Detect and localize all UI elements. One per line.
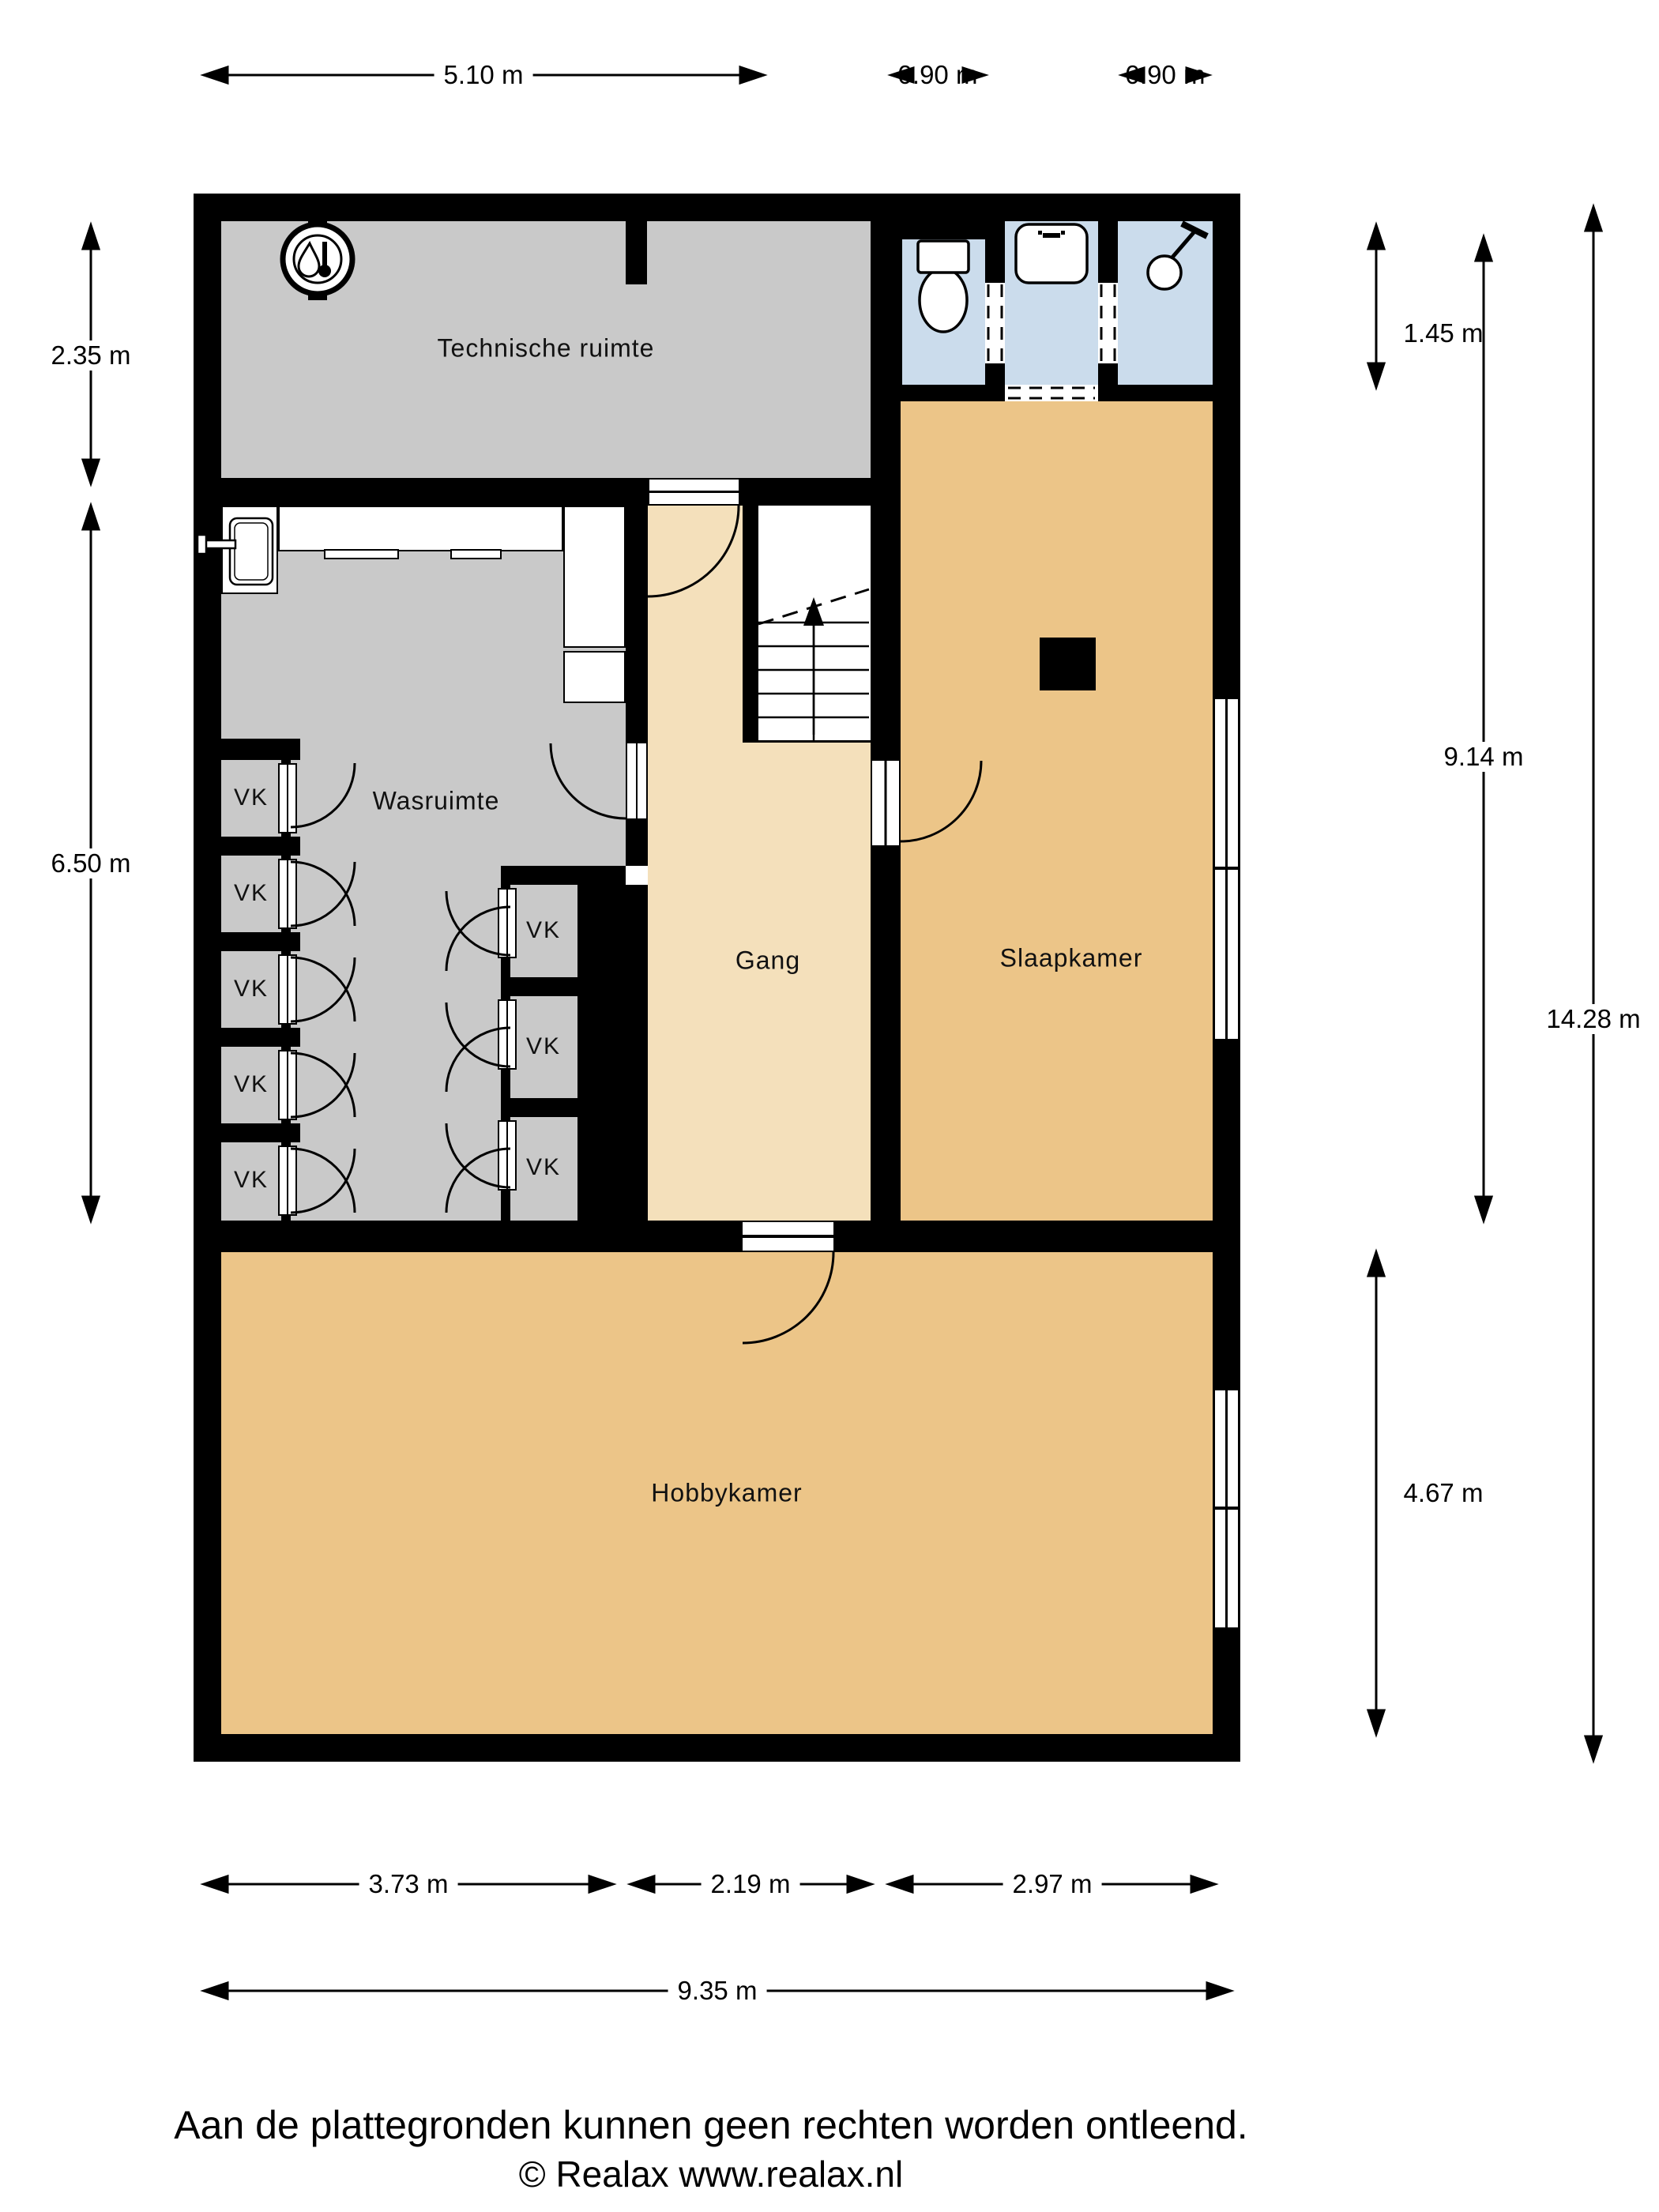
room-label-vk: VK xyxy=(526,1033,561,1060)
footer-copyright: © Realax www.realax.nl xyxy=(519,2153,903,2195)
door-hobbykamer xyxy=(741,1221,835,1252)
room-shower-cell xyxy=(1118,221,1213,385)
partition-dashed xyxy=(985,283,1005,363)
dimension-label-right-3: 14.28 m xyxy=(1537,1004,1650,1034)
partition-dashed xyxy=(1005,385,1098,401)
dimension-label-left-2: 6.50 m xyxy=(42,848,141,878)
wall-toilet-top xyxy=(902,221,985,239)
wall-vk-left-divider xyxy=(194,1123,300,1142)
wall-stairs-west xyxy=(743,478,757,731)
wall-stairs-notch xyxy=(743,731,757,743)
room-label-vk: VK xyxy=(526,1154,561,1181)
door-wasruimte xyxy=(626,742,648,820)
wall-exterior-left xyxy=(194,194,221,1762)
wall-hobbykamer-north xyxy=(194,1221,1240,1252)
counter xyxy=(278,506,563,551)
wall-vk-right-divider xyxy=(501,977,577,996)
door-vk xyxy=(278,859,297,929)
room-toilet-cell xyxy=(902,239,985,385)
door-slaapkamer xyxy=(871,759,901,847)
wall-vk-right-top xyxy=(501,866,626,885)
room-label-technische-ruimte: Technische ruimte xyxy=(438,334,655,363)
door-vk xyxy=(278,763,297,833)
dimension-label-right-4: 4.67 m xyxy=(1404,1478,1484,1508)
room-label-vk: VK xyxy=(234,784,269,811)
dimension-label-right-1: 1.45 m xyxy=(1404,318,1484,348)
appliance-front xyxy=(324,549,399,559)
door-vk xyxy=(498,999,517,1070)
dimension-label-top-3: 0.90 m xyxy=(1126,60,1206,90)
wall-vk-right-divider xyxy=(501,1098,577,1117)
wall-vk-left-divider xyxy=(194,837,300,856)
footer-disclaimer: Aan de plattegronden kunnen geen rechten… xyxy=(174,2102,1247,2148)
dimension-label-left-1: 2.35 m xyxy=(42,340,141,371)
room-label-vk: VK xyxy=(234,1167,269,1194)
door-technische-ruimte xyxy=(648,478,740,506)
room-label-gang: Gang xyxy=(735,946,800,976)
dimension-label-top-2: 0.90 m xyxy=(898,60,978,90)
room-slaapkamer xyxy=(901,401,1213,1221)
window-mullion xyxy=(1213,867,1240,870)
appliance-front xyxy=(450,549,502,559)
room-label-wasruimte: Wasruimte xyxy=(373,787,500,816)
wall-exterior-bottom xyxy=(194,1734,1240,1762)
wall-vk-left-divider xyxy=(194,1028,300,1047)
window-mullion xyxy=(1213,1507,1240,1510)
dimension-label-bottom-4: 9.35 m xyxy=(668,1976,767,2006)
partition-dashed xyxy=(1098,283,1118,363)
door-vk xyxy=(498,1120,517,1191)
room-label-vk: VK xyxy=(234,976,269,1003)
dimension-label-right-2: 9.14 m xyxy=(1435,742,1533,772)
dimension-label-bottom-1: 3.73 m xyxy=(359,1869,458,1899)
wall-bathroom-west xyxy=(871,194,902,401)
wall-stub xyxy=(626,221,647,284)
door-vk xyxy=(278,1050,297,1120)
floor-plan: Technische ruimte Wasruimte Gang Slaapka… xyxy=(0,0,1659,2212)
room-label-vk: VK xyxy=(234,880,269,907)
low-cabinet xyxy=(563,651,626,703)
staircase xyxy=(757,506,871,743)
room-label-slaapkamer: Slaapkamer xyxy=(1000,944,1143,973)
room-label-hobbykamer: Hobbykamer xyxy=(651,1479,802,1508)
room-label-vk: VK xyxy=(526,917,561,944)
wall-vk-right-east xyxy=(577,885,648,1221)
wall-vk-left-divider xyxy=(194,932,300,951)
door-vk xyxy=(278,1145,297,1216)
room-washbasin-cell xyxy=(1005,221,1098,385)
flue-column xyxy=(1040,638,1096,690)
tall-cabinet xyxy=(563,506,626,648)
sink-cabinet xyxy=(221,506,278,594)
dimension-label-bottom-2: 2.19 m xyxy=(702,1869,800,1899)
door-vk xyxy=(498,888,517,958)
room-label-vk: VK xyxy=(234,1071,269,1098)
wall-technische-ruimte-south xyxy=(194,478,901,506)
door-vk xyxy=(278,954,297,1025)
dimension-label-top-1: 5.10 m xyxy=(434,60,533,90)
dimension-label-bottom-3: 2.97 m xyxy=(1003,1869,1102,1899)
wall-exterior-top xyxy=(194,194,1240,221)
wall-vk-left-top xyxy=(194,739,300,760)
